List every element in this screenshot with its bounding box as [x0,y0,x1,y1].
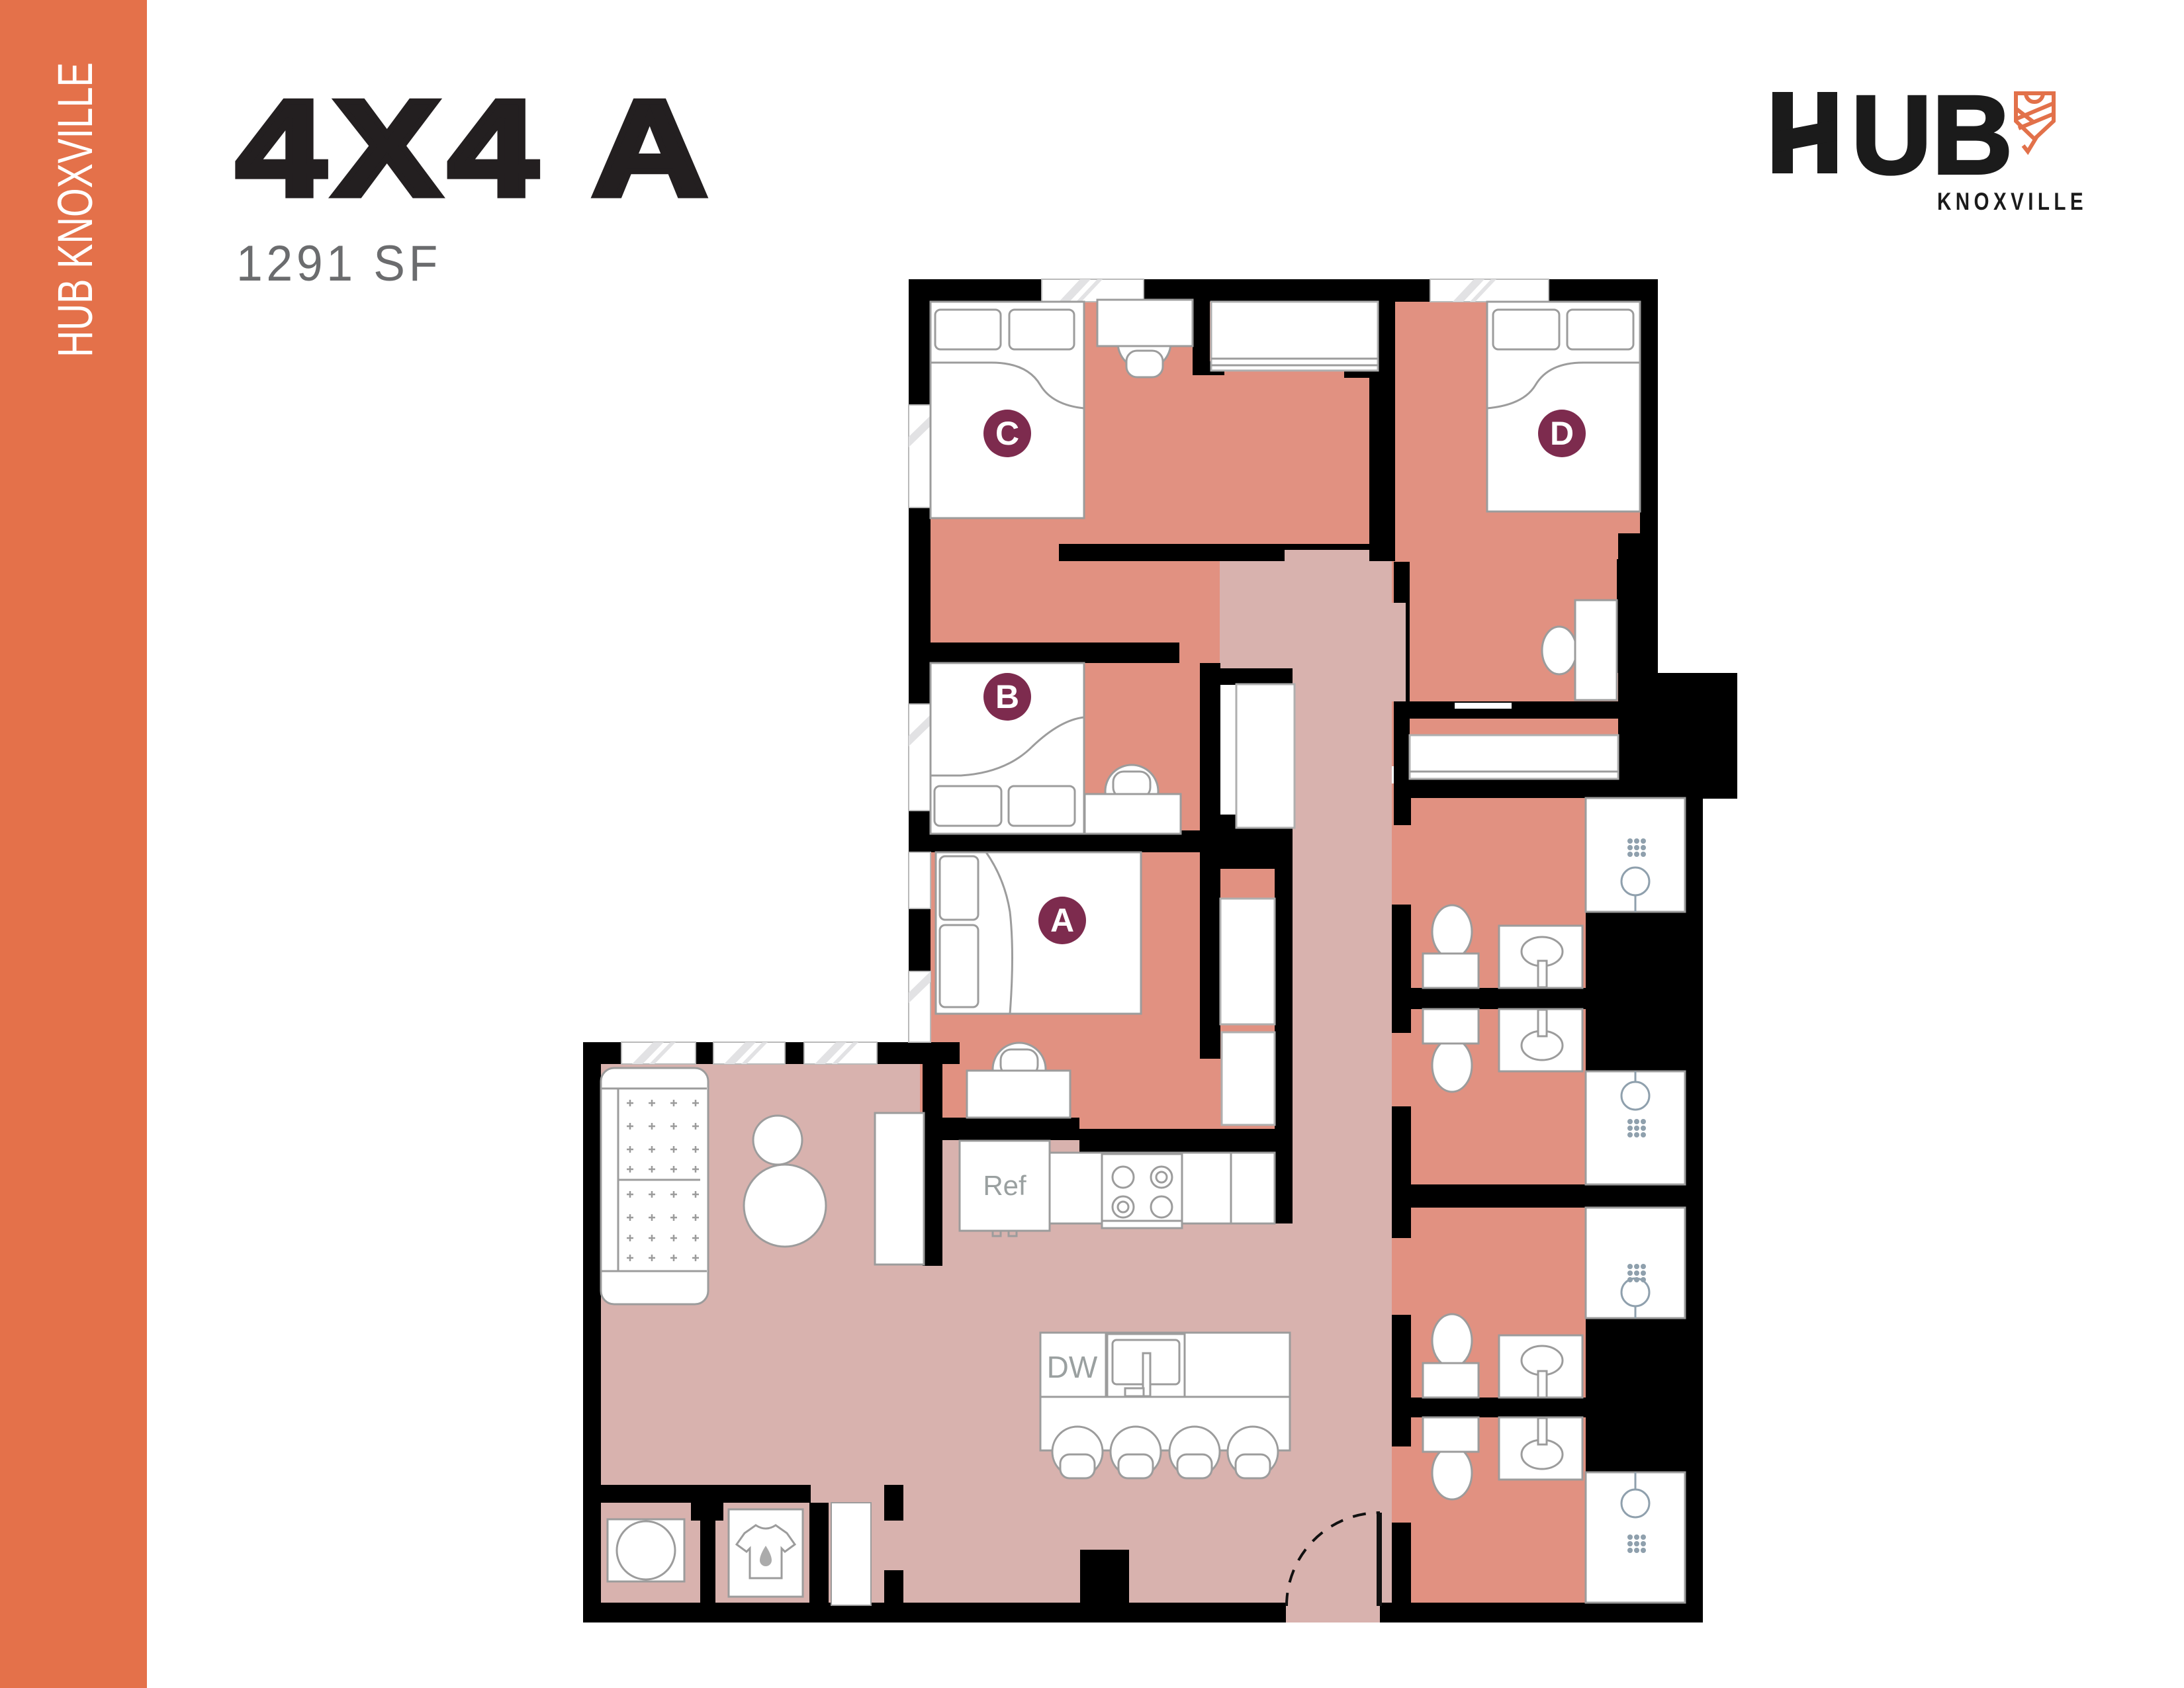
svg-text:1291 SF: 1291 SF [236,236,441,292]
svg-text:Ref: Ref [983,1170,1026,1201]
svg-text:DW: DW [1047,1350,1098,1384]
svg-text:D: D [1550,415,1574,452]
svg-text:KNOXVILLE: KNOXVILLE [1937,188,2087,215]
svg-text:4X4 A: 4X4 A [236,72,715,224]
svg-text:C: C [995,415,1019,452]
svg-text:UB: UB [1851,72,2013,197]
svg-text:A: A [1050,902,1074,939]
svg-text:B: B [995,678,1019,715]
svg-text:HUB KNOXVILLE: HUB KNOXVILLE [48,62,103,357]
